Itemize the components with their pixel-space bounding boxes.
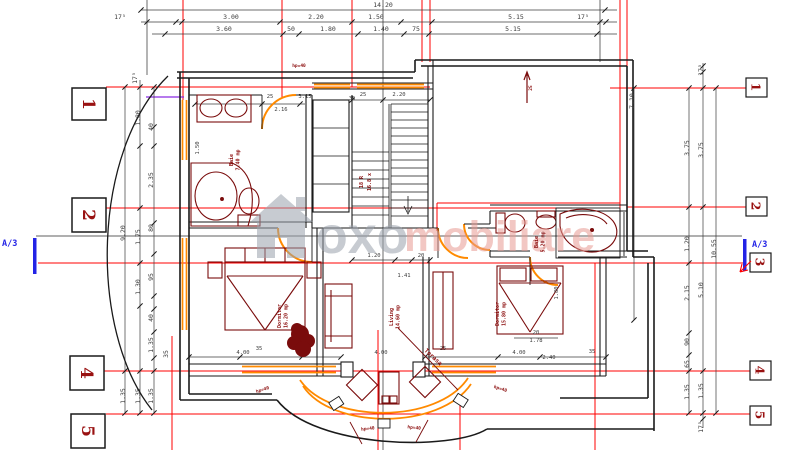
arrow-note: 25 — [528, 85, 534, 91]
dim-label-interior: 3.15 — [298, 94, 311, 100]
room-name-label: Living — [389, 308, 395, 326]
dim-label-top: 14.20 — [373, 1, 393, 9]
dim-label-left: 1.30 — [134, 279, 142, 295]
dim-label-interior: 4.00 — [512, 350, 525, 356]
grid-number: 2 — [78, 209, 98, 221]
dim-label-right: 2.15 — [683, 285, 691, 301]
dim-label-left: 9.20 — [119, 225, 127, 241]
room-area-label: 5.20 mp — [541, 231, 547, 252]
grid-number: 5 — [77, 425, 97, 437]
room-name-label: Dormitor — [277, 304, 283, 328]
dim-label-left: 40 — [147, 123, 155, 131]
dim-label-right: 65 — [683, 360, 691, 368]
dim-label-top: 50 — [287, 25, 295, 33]
dim-label-interior: 1.20 — [367, 253, 380, 259]
dim-label-top: 1.80 — [320, 25, 336, 33]
dim-label-interior: 1.50 — [195, 141, 201, 154]
dim-label-interior: 4.00 — [236, 350, 249, 356]
dim-label-top: 3.00 — [223, 13, 239, 21]
dim-label-left: 1.35 — [147, 337, 155, 353]
dim-label-left: 35 — [162, 350, 170, 358]
grid-number: 1 — [78, 98, 98, 110]
dim-label-right: 3.75 — [683, 140, 691, 156]
watermark-word2: mobiliare — [404, 213, 595, 261]
room-name-label: Baie — [229, 154, 235, 166]
watermark-word1: oxo — [316, 207, 408, 265]
section-label-right: A/3 — [752, 240, 767, 250]
room-area-label: 15.80 mp — [502, 302, 508, 326]
section-label-left: A/3 — [2, 239, 17, 249]
dim-label-interior: 35 — [256, 346, 263, 352]
dim-label-left: 2.35 — [147, 172, 155, 188]
dim-label-top: 17⁵ — [114, 13, 126, 21]
dim-label-interior: 35 — [589, 349, 596, 355]
dim-label-interior: 2.20 — [392, 92, 405, 98]
dim-label-left: 1.35 — [134, 388, 142, 404]
grid-number: 3 — [753, 258, 768, 267]
grid-number: 4 — [753, 366, 768, 375]
grid-number: 1 — [749, 83, 764, 92]
window-height-note: hp=40 — [292, 63, 306, 69]
dim-label-top: 17⁵ — [577, 13, 589, 21]
dim-label-left: 1.35 — [147, 388, 155, 404]
dim-label-right: 1.20 — [683, 236, 691, 252]
dim-label-interior: 2.40 — [542, 355, 555, 361]
dim-label-interior: 20 — [533, 330, 540, 336]
dim-label-top: 1.40 — [373, 25, 389, 33]
dim-label-interior: 35 — [349, 96, 356, 102]
dim-label-left: 1.80 — [134, 110, 142, 126]
dim-label-top: 5.15 — [505, 25, 521, 33]
dim-label-right: 1.35 — [697, 383, 705, 399]
room-area-label: 16.20 mp — [284, 304, 290, 328]
dim-label-right: 17⁵ — [697, 64, 705, 76]
dim-label-interior: 25 — [440, 346, 447, 352]
dim-label-top: 75 — [412, 25, 420, 33]
dim-label-left: 80 — [147, 224, 155, 232]
dim-label-top: 3.60 — [216, 25, 232, 33]
dim-label-left: 17⁵ — [131, 72, 139, 84]
room-area-label: 14.60 mp — [396, 305, 402, 329]
dim-label-interior: 25 — [360, 92, 367, 98]
dim-label-right: 17⁵ — [697, 421, 705, 433]
dim-label-right: 10.55 — [710, 239, 718, 259]
dim-label-right: 3.75 — [697, 142, 705, 158]
dim-label-interior: 1.80 — [554, 286, 560, 299]
stair-note-line2: 16.8 x — [367, 173, 373, 191]
floor-plan-drawing: oxo mobiliare 1 2 4 5 1 2 3 4 5 A/3 A/3 … — [0, 0, 800, 450]
dim-label-interior: 25 — [267, 94, 274, 100]
dim-label-top: 2.20 — [308, 13, 324, 21]
stair-note-line1: 18 R — [359, 175, 365, 188]
dim-label-right: 1.35 — [683, 384, 691, 400]
grid-number: 4 — [76, 367, 96, 379]
dim-label-top: 1.50 — [368, 13, 384, 21]
dim-label-right: 5.10 — [697, 282, 705, 298]
dim-label-left: 1.35 — [119, 388, 127, 404]
grid-number: 2 — [749, 202, 764, 211]
dim-label-left: 40 — [147, 314, 155, 322]
dim-label-left: 95 — [147, 273, 155, 281]
dim-label-top: 5.15 — [508, 13, 524, 21]
dim-label-left: 1.75 — [134, 229, 142, 245]
room-name-label: Dormitor — [495, 302, 501, 326]
room-name-label: Baie — [534, 236, 540, 248]
dim-label-interior: 20 — [418, 253, 425, 259]
dim-label-right: 7.10 — [628, 93, 636, 109]
dim-label-interior: 1.41 — [397, 273, 410, 279]
dim-label-interior: 4.00 — [374, 350, 387, 356]
room-area-label: 7.40 mp — [236, 149, 242, 170]
grid-number: 5 — [753, 411, 768, 420]
dim-label-interior: 2.16 — [274, 107, 287, 113]
dim-label-right: 90 — [683, 338, 691, 346]
dim-label-interior: 1.78 — [529, 338, 542, 344]
